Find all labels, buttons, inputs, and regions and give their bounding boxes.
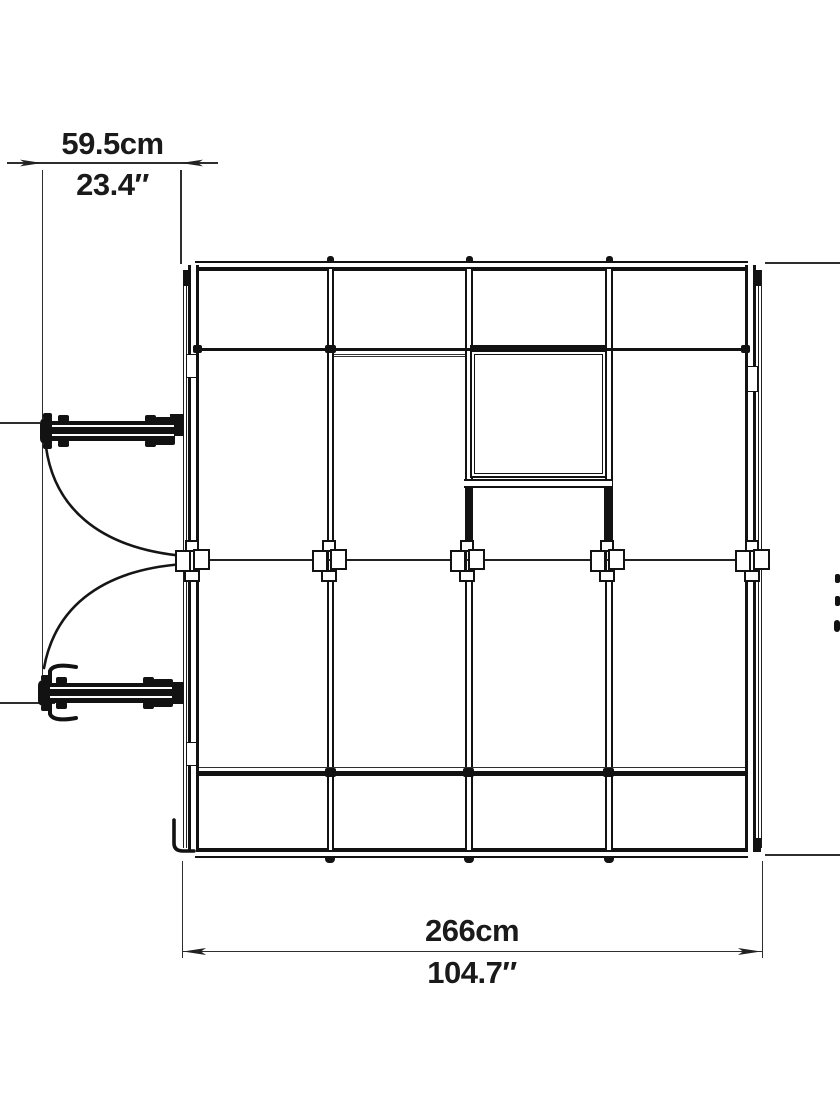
- connector-block: [450, 550, 466, 572]
- overall-width-metric-label: 266cm: [382, 915, 562, 946]
- connector-block: [193, 549, 210, 570]
- arrowhead-top-left: [20, 160, 42, 167]
- connector-tab: [459, 570, 475, 582]
- cross-connector-3: [590, 540, 626, 582]
- cross-connector-left-wall: [175, 540, 211, 582]
- door-width-metric-label: 59.5cm: [20, 128, 205, 159]
- connector-block: [330, 549, 347, 570]
- connector-tab: [599, 570, 615, 582]
- connector-tab: [184, 570, 200, 582]
- arrowhead-bottom-right: [738, 948, 761, 955]
- cross-connector-1: [312, 540, 348, 582]
- connector-block: [312, 550, 328, 572]
- arrowhead-bottom-left: [183, 948, 206, 955]
- cross-connector-right-wall: [735, 540, 771, 582]
- door-swing-arc-bottom: [44, 564, 184, 668]
- connector-block: [468, 549, 485, 570]
- door-swing-arc-top: [46, 447, 184, 556]
- connector-block: [753, 549, 770, 570]
- connector-tab: [744, 570, 760, 582]
- arrowhead-top-right: [181, 160, 203, 167]
- connector-tab: [321, 570, 337, 582]
- cross-connector-2: [450, 540, 486, 582]
- connector-block: [608, 549, 625, 570]
- overall-width-imperial-label: 104.7″: [382, 957, 562, 988]
- door-handle-hook-lower: [50, 701, 76, 719]
- connector-block: [590, 550, 606, 572]
- wall-corner-hook: [174, 820, 194, 851]
- dimension-drawing-canvas: 59.5cm 23.4″ 266cm 104.7″: [0, 0, 840, 1120]
- door-handle-hook-upper: [50, 666, 76, 684]
- connector-block: [175, 550, 191, 572]
- door-width-imperial-label: 23.4″: [20, 169, 205, 200]
- connector-block: [735, 550, 751, 572]
